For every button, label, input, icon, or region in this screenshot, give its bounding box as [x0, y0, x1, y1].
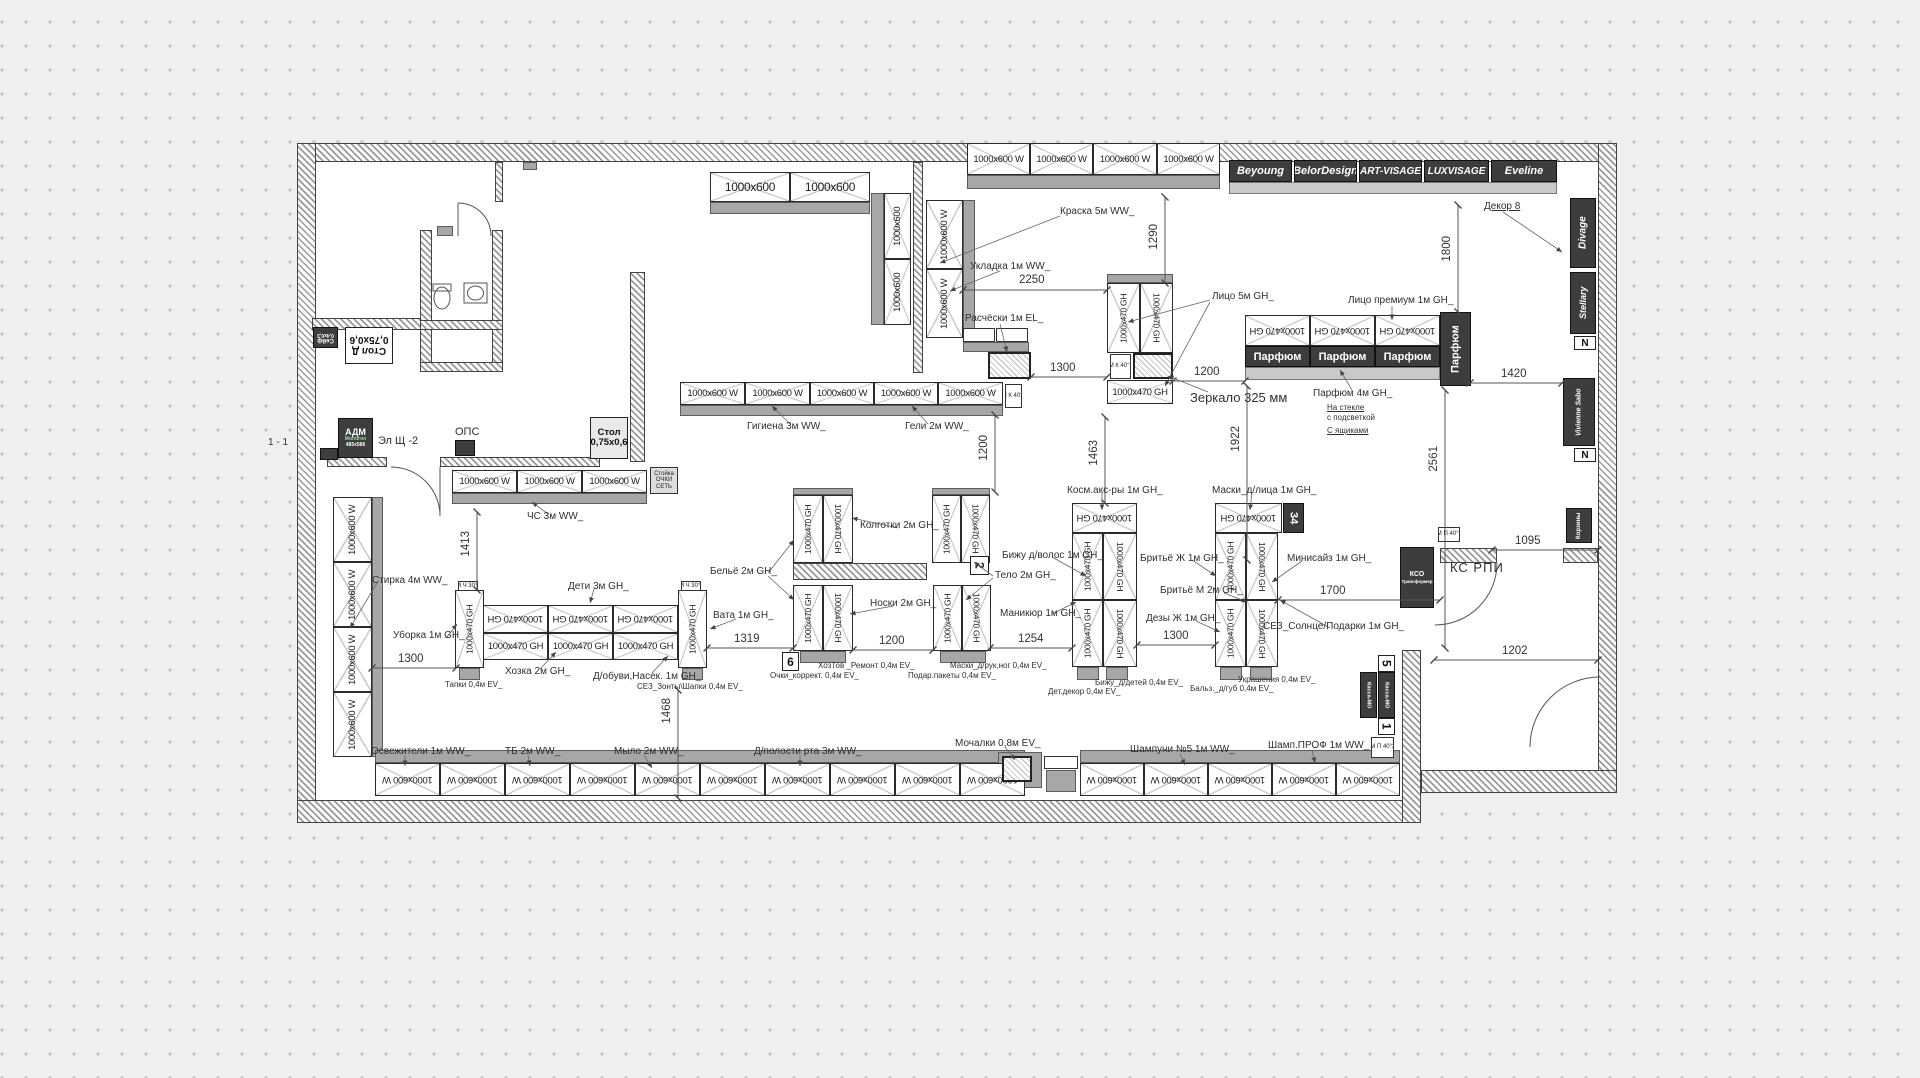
zone-label: Гели 2м WW_ — [905, 421, 969, 432]
zone-label: Маски_д/рук,ног 0,4м EV_ — [950, 661, 1047, 670]
zone-label: Зеркало 325 мм — [1190, 390, 1287, 405]
zone-label: Д/полости рта 3м WW_ — [754, 746, 862, 757]
perfume-bay: Парфюм — [1245, 346, 1310, 367]
shelf-depth — [967, 175, 1220, 189]
shelf-unit: 1000x470 GH — [823, 585, 853, 651]
zone-label: Минисайз 1м GH_ — [1287, 553, 1371, 564]
shelf-unit: 1000x600 — [884, 259, 911, 325]
shelf-unit: 1000x600 W — [1157, 143, 1220, 175]
zone-label: Дезы Ж 1м GH_ — [1146, 613, 1220, 624]
shelf-unit: 1000x470 GH — [961, 495, 990, 563]
zone-label: Носки 2м GH_ — [870, 598, 936, 609]
shelf-unit: 1000x600 W — [440, 763, 505, 796]
el-shchit-box — [320, 448, 338, 460]
zone-label: Укладка 1м WW_ — [970, 261, 1050, 272]
dimension: 1290 — [1148, 224, 1160, 250]
adm-workstation: АДМ Monitron 485x586 — [338, 418, 373, 458]
gondola-cap — [932, 488, 990, 495]
shelf-unit: 1000x600 W — [333, 562, 372, 627]
zone-label: Гигиена 3м WW_ — [747, 421, 826, 432]
dimension: 1319 — [734, 633, 760, 645]
cash-desk: Касса-МО — [1378, 672, 1395, 718]
store-floorplan: 1000x600 1000x600 1000x600 1000x600 1000… — [0, 0, 1920, 1078]
zone-label: Бельё 2м GH_ — [710, 566, 777, 577]
dimension: 1468 — [661, 698, 673, 724]
dimension: 1413 — [460, 531, 472, 557]
room-label-elshch: Эл Щ -2 — [378, 435, 418, 447]
fixture-number-label: 2 — [973, 562, 987, 569]
shelf-unit: 1000x600 W — [1144, 763, 1208, 796]
small-unit — [1046, 770, 1076, 792]
shelf-unit: 1000x470 GH — [1215, 600, 1246, 667]
equipment-box: ВМ П 40°30 — [1438, 527, 1460, 542]
shelf-unit: 1000x600 W — [680, 382, 745, 405]
wall-ksrpi-b — [1563, 548, 1598, 563]
shelf-unit: 1000x600 W — [926, 200, 963, 269]
desk-d-size: 0,75х0,6 — [350, 335, 389, 346]
fixture-number: 5 — [1378, 655, 1395, 672]
shelf-unit: 1000x470 GH — [1072, 533, 1103, 600]
zone-label: Маски_д/лица 1м GH_ — [1212, 485, 1316, 496]
safe-size: 0,4х0,3 — [317, 332, 334, 337]
counter-top — [1002, 756, 1032, 782]
wall-bottom-right — [1421, 770, 1617, 793]
zone-label: Дет.декор 0,4м EV_ — [1048, 687, 1120, 696]
wall-backroom — [630, 272, 645, 462]
glasses-stand: Стойка ОЧКИ СЕТЬ — [650, 467, 678, 494]
dimension: 1463 — [1088, 440, 1100, 466]
gondola-cap — [1107, 274, 1173, 283]
shelf-unit: 1000x470 GH — [1245, 315, 1310, 346]
equipment-box: ВМ К 40°30 — [1110, 354, 1131, 379]
note: На стекле — [1327, 403, 1364, 412]
equipment-box: ВМ Ч 30°39 — [458, 581, 478, 591]
column-marker: N — [1574, 336, 1596, 350]
note: с подсветкой — [1327, 413, 1375, 422]
wall-bottom — [297, 800, 1421, 823]
wall-step — [1402, 650, 1421, 823]
dimension: 1200 — [978, 435, 990, 461]
zone-label: Мыло 2м WW_ — [614, 746, 683, 757]
zone-label: Хозка 2м GH_ — [505, 666, 570, 677]
wall-room2-bottom — [420, 362, 503, 372]
equipment-box: ВМ К 40°39 — [1005, 384, 1022, 408]
shelf-unit: 1000x470 GH — [1246, 533, 1278, 600]
shelf-unit: 1000x470 GH — [793, 585, 823, 651]
zone-label: Д/обуви,Насек. 1м GH_ — [593, 671, 701, 682]
fixture-number: 2 — [970, 556, 989, 575]
wall-bath-right — [492, 230, 503, 372]
note: С ящиками — [1327, 426, 1368, 435]
zone-label: Тапки 0,4м EV_ — [445, 680, 502, 689]
zone-label: Очки_коррект. 0,4м EV_ — [770, 671, 859, 680]
shelf-unit: 1000x600 W — [830, 763, 895, 796]
adm-size: 485x586 — [346, 443, 365, 449]
comb-display — [996, 328, 1028, 342]
counter-base — [963, 342, 1029, 352]
shelf-unit: 1000x600 W — [895, 763, 960, 796]
gondola-end: 1000x470 GH — [455, 590, 484, 668]
cash-desk: Касса-МО — [1360, 672, 1377, 718]
shelf-unit: 1000x470 GH — [483, 605, 548, 633]
shelf-unit: 1000x600 W — [765, 763, 830, 796]
duct-top-wall — [523, 162, 537, 170]
shelf-unit: 1000x470 GH — [548, 633, 613, 660]
dimension: 2250 — [1019, 274, 1045, 286]
safe: Сейф 0,4х0,3 — [313, 327, 338, 348]
dimension: 1300 — [398, 653, 424, 665]
wall-chs-b — [440, 457, 600, 467]
zone-label: Подар.пакеты 0,4м EV_ — [908, 671, 996, 680]
brand-bay-divage: Divage — [1570, 198, 1596, 268]
gondola-end: 1000x470 GH — [678, 590, 707, 668]
zone-label: Краска 5м WW_ — [1060, 206, 1135, 217]
zone-label: Украшения 0,4м EV_ — [1238, 675, 1315, 684]
shelf-unit: 1000x600 W — [1272, 763, 1336, 796]
shelf-unit: 1000x470 GH — [793, 495, 823, 563]
comb-counter — [988, 352, 1031, 379]
gondola-foot — [459, 668, 480, 680]
dimension: 1300 — [1163, 630, 1189, 642]
zone-label: Бальз._д/губ 0,4м EV_ — [1190, 684, 1274, 693]
zone-label: Освежители 1м WW_ — [371, 746, 470, 757]
shelf-depth — [1080, 750, 1400, 763]
zone-label: Декор 8 — [1484, 201, 1520, 212]
perfume-bay: Парфюм — [1440, 312, 1471, 386]
zone-label: Дети 3м GH_ — [568, 581, 629, 592]
zone-label: Стирка 4м WW_ — [372, 575, 448, 586]
shelf-unit: 1000x470 GH — [962, 585, 991, 651]
shelf-unit: 1000x600 W — [1080, 763, 1144, 796]
brand-bay-artvisage: ART-VISAGE — [1359, 160, 1422, 182]
dimension: 1922 — [1230, 426, 1242, 452]
shelf-unit: 1000x470 GH — [1375, 315, 1440, 346]
room-label-ksrpi: КС РПИ — [1450, 560, 1504, 575]
floor-ksrpi — [1421, 690, 1598, 770]
shelf-unit: 1000x470 GH — [1310, 315, 1375, 346]
wall-bath-left — [420, 230, 432, 372]
shelf-unit: 1000x470 GH — [1103, 533, 1137, 600]
fixture-number-label: 34 — [1288, 512, 1300, 524]
dimension: 1300 — [1050, 362, 1076, 374]
room-label-ops: ОПС — [455, 426, 479, 438]
brand-bay-luxvisage: LUXVISAGE — [1424, 160, 1489, 182]
dimension: 1202 — [1502, 645, 1528, 657]
zone-label: Лицо премиум 1м GH_ — [1348, 295, 1453, 306]
brand-bay-beyoung: Beyoung — [1229, 160, 1292, 182]
zone-label: Уборка 1м GH_ — [393, 630, 465, 641]
shelf-unit: 1000x600 — [710, 172, 790, 202]
zone-label: Вата 1м GH_ — [713, 610, 774, 621]
dimension: 1095 — [1515, 535, 1541, 547]
column-marker: N — [1574, 448, 1596, 462]
comb-display — [963, 328, 995, 342]
gondola-cap-shelf: 1000x470 GH — [1072, 503, 1137, 533]
perfume-bay: Парфюм — [1310, 346, 1375, 367]
gondola-cap — [793, 488, 853, 495]
shelf-unit: 1000x470 GH — [613, 633, 678, 660]
brand-bay-stellary: Stellary — [1570, 272, 1596, 334]
shelf-unit: 1000x470 GH — [1103, 600, 1137, 667]
desk-d: Стол Д 0,75х0,6 — [345, 327, 393, 364]
duct-bath — [437, 226, 453, 236]
shelf-unit: 1000x470 GH — [548, 605, 613, 633]
shelf-unit: 1000x600 W — [874, 382, 938, 405]
shelf-unit: 1000x600 W — [810, 382, 874, 405]
kso-transformer: КСО Трансформер — [1400, 547, 1434, 608]
dimension: 1254 — [1018, 633, 1044, 645]
desk-size: 0,75х0,6 — [591, 438, 628, 448]
wall-right — [1598, 143, 1617, 793]
shelf-depth — [1229, 182, 1557, 194]
shelf-depth — [871, 193, 884, 325]
shelf-unit: 1000x600 W — [375, 763, 440, 796]
shelf-depth — [1245, 367, 1440, 380]
desk-d-label: Стол Д — [352, 346, 386, 357]
shelf-unit: 1000x470 GH — [1107, 380, 1173, 404]
zone-label: Бижу_д/детей 0,4м EV_ — [1095, 678, 1183, 687]
cash-desk-label: Касса-МО — [1366, 682, 1372, 708]
shelf-depth — [375, 750, 1025, 763]
fixture-number-label: 5 — [1380, 660, 1394, 667]
shelf-unit: 1000x600 W — [505, 763, 570, 796]
shelf-unit: 1000x600 W — [635, 763, 700, 796]
shelf-unit: 1000x600 W — [745, 382, 810, 405]
section-mark: 1 - 1 — [268, 437, 288, 448]
shelf-depth — [372, 497, 383, 757]
shelf-unit: 1000x600 W — [333, 497, 372, 562]
shelf-unit: 1000x600 W — [967, 143, 1030, 175]
shelf-unit: 1000x600 W — [700, 763, 765, 796]
equipment-box: ВМ П 40°30 — [1371, 737, 1394, 758]
shelf-unit: 1000x470 GH — [823, 495, 853, 563]
shelf-unit: 1000x600 W — [1093, 143, 1157, 175]
dimension: 1200 — [879, 635, 905, 647]
shelf-unit: 1000x600 W — [1030, 143, 1093, 175]
glasses-stand-l3: СЕТЬ — [656, 484, 672, 490]
wall-stub — [495, 162, 503, 202]
shelf-unit: 1000x600 W — [582, 470, 647, 493]
fixture-number: 6 — [782, 652, 799, 671]
shelf-unit: 1000x600 — [790, 172, 870, 202]
zone-label: Бритьё М 2м GH_ — [1160, 585, 1243, 596]
zone-label: Мочалки 0,8м EV_ — [955, 738, 1041, 749]
zone-label: Лицо 5м GH_ — [1212, 291, 1274, 302]
zone-label: ТБ 2м WW_ — [505, 746, 560, 757]
zone-label: ЧС 3м WW_ — [527, 511, 583, 522]
shelf-unit: 1000x600 W — [938, 382, 1003, 405]
brand-bay-eveline: Eveline — [1491, 160, 1557, 182]
fixture-number: 34 — [1283, 503, 1304, 533]
zone-label: Парфюм 4м GH_ — [1313, 388, 1392, 399]
zone-label: Маникюр 1м GH_ — [1000, 608, 1081, 619]
kso-sublabel: Трансформер — [1402, 579, 1433, 584]
fixture-number-label: 1 — [1380, 723, 1394, 730]
zone-label: Косм.акс-ры 1м GH_ — [1067, 485, 1163, 496]
shelf-unit: 1000x600 W — [570, 763, 635, 796]
baskets-stand: Корзины — [1566, 508, 1592, 543]
zone-label: СЕЗ_Солнце/Подарки 1м GH_ — [1263, 621, 1404, 632]
brand-bay-vivienne-sabo: Vivienne Sabo — [1563, 378, 1595, 446]
shelf-depth — [710, 202, 870, 214]
zone-label: СЕЗ_Зонты\Шапки 0,4м EV_ — [637, 682, 743, 691]
wall-left — [297, 143, 316, 823]
dimension: 1420 — [1501, 368, 1527, 380]
dimension: 1700 — [1320, 585, 1346, 597]
zone-label: ХозТов _Ремонт 0,4м EV_ — [818, 661, 915, 670]
mirror-325 — [1133, 353, 1173, 379]
wall-bath-bottom — [420, 320, 503, 330]
small-display — [1044, 756, 1078, 769]
zone-label: Шампуни №5 1м WW_ — [1130, 744, 1235, 755]
shelf-unit: 1000x600 W — [333, 627, 372, 692]
desk: Стол 0,75х0,6 — [590, 417, 628, 459]
structural-beam — [793, 563, 927, 580]
dimension: 1800 — [1441, 236, 1453, 262]
shelf-unit: 1000x600 W — [452, 470, 517, 493]
zone-label: Бижу д/волос 1м GH_ — [1002, 550, 1103, 561]
shelf-unit: 1000x600 W — [1336, 763, 1400, 796]
cash-desk-label: Касса-МО — [1384, 682, 1390, 708]
zone-label: Колготки 2м GH_ — [860, 520, 939, 531]
shelf-unit: 1000x600 W — [926, 269, 963, 338]
shelf-unit: 1000x600 — [884, 193, 911, 259]
shelf-depth — [452, 493, 647, 504]
shelf-unit: 1000x600 W — [517, 470, 582, 493]
shelf-unit: 1000x470 GH — [483, 633, 548, 660]
zone-label: Бритьё Ж 1м GH_ — [1140, 553, 1224, 564]
wall-mid-column — [913, 162, 923, 373]
perfume-bay: Парфюм — [1375, 346, 1440, 367]
dimension: 1200 — [1194, 366, 1220, 378]
shelf-unit: 1000x470 GH — [933, 585, 962, 651]
dimension: 2561 — [1428, 446, 1440, 472]
shelf-depth — [680, 405, 1003, 416]
shelf-unit: 1000x470 GH — [1107, 283, 1140, 353]
shelf-unit: 1000x470 GH — [1246, 600, 1278, 667]
brand-bay-belordesign: BelorDesign — [1294, 160, 1357, 182]
ops-box — [455, 440, 475, 456]
shelf-unit: 1000x470 GH — [1140, 283, 1173, 353]
equipment-box: ВМ Ч 30°39 — [681, 581, 701, 591]
zone-label: Тело 2м GH_ — [995, 570, 1056, 581]
shelf-unit: 1000x600 W — [1208, 763, 1272, 796]
shelf-unit: 1000x600 W — [333, 692, 372, 757]
gondola-cap-shelf: 1000x470 GH — [1215, 503, 1282, 533]
kso-label: КСО — [1410, 571, 1425, 579]
zone-label: Расчёски 1м EL_ — [965, 313, 1043, 324]
zone-label: Шамп.ПРОФ 1м WW_ — [1268, 740, 1369, 751]
fixture-number: 1 — [1378, 718, 1395, 735]
shelf-unit: 1000x470 GH — [613, 605, 678, 633]
